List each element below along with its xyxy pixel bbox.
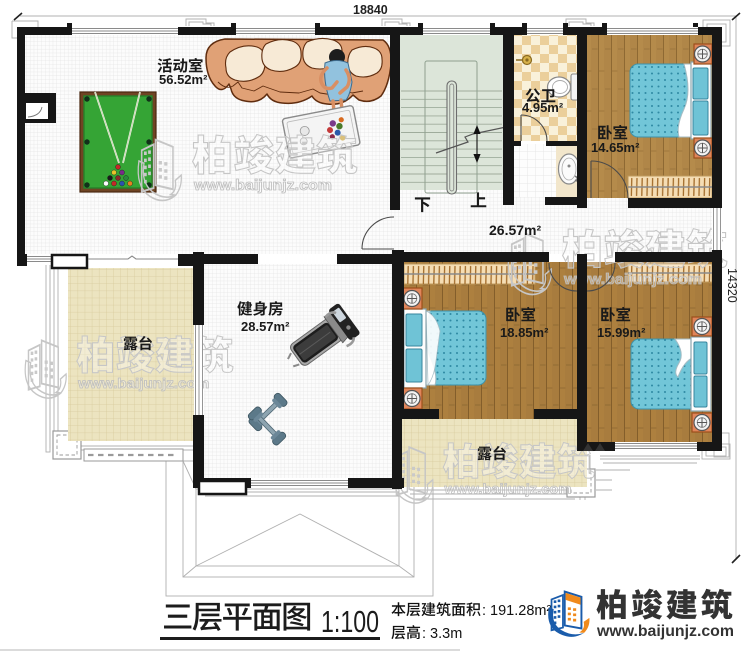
svg-text:www.baijunjz.com: www.baijunjz.com (77, 376, 209, 392)
svg-text:14.65m²: 14.65m² (591, 140, 640, 155)
svg-text:4.95m²: 4.95m² (522, 100, 564, 115)
svg-text:1:100: 1:100 (321, 604, 379, 639)
svg-text:18.85m²: 18.85m² (500, 325, 549, 340)
svg-text:18840: 18840 (353, 3, 388, 17)
svg-text:: 191.28m²: : 191.28m² (482, 603, 551, 619)
svg-text:26.57m²: 26.57m² (489, 222, 541, 238)
svg-text:28.57m²: 28.57m² (241, 319, 290, 334)
svg-text:56.52m²: 56.52m² (159, 72, 208, 87)
svg-text:: 3.3m: : 3.3m (422, 626, 462, 642)
svg-text:www.baijunjz.com: www.baijunjz.com (596, 623, 734, 640)
svg-text:15.99m²: 15.99m² (597, 325, 646, 340)
svg-text:www.baijunjz.com: www.baijunjz.com (193, 177, 332, 194)
svg-text:www.baijunjz.com: www.baijunjz.com (443, 481, 571, 496)
svg-text:14320: 14320 (725, 268, 739, 303)
